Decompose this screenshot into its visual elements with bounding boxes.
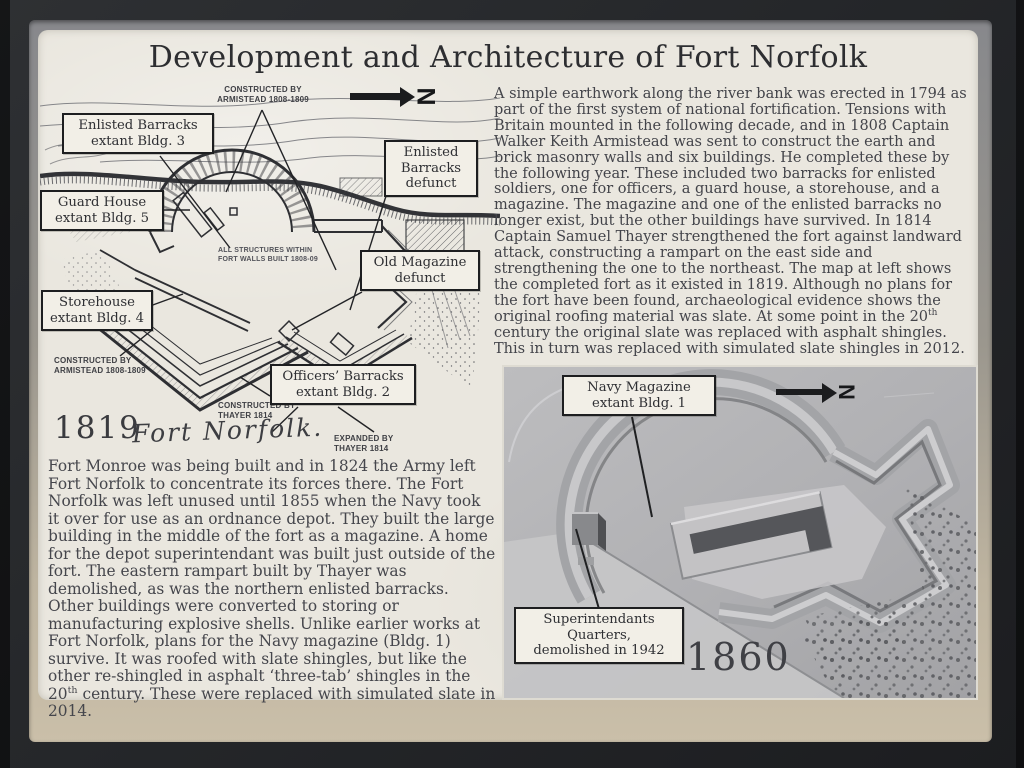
callout-enlisted-barracks-defunct: Enlisted Barracks defunct [384,140,478,197]
history-paragraph-1794-1819: A simple earthwork along the river bank … [494,87,976,357]
paragraph-text: A simple earthwork along the river bank … [494,86,967,325]
photo-year-label: 1860 [686,635,791,679]
north-letter: N [413,87,438,105]
annotation-constructed-armistead-top: CONSTRUCTED BY ARMISTEAD 1808-1809 [190,85,336,106]
sign-title: Development and Architecture of Fort Nor… [38,40,978,75]
annotation-constructed-armistead-bottom: CONSTRUCTED BY ARMISTEAD 1808-1809 [54,356,194,377]
callout-enlisted-barracks-extant: Enlisted Barracks extant Bldg. 3 [62,113,214,154]
map-year-label: 1819 [54,410,141,446]
north-arrow-map: N [350,84,434,109]
history-paragraph-1824-2014: Fort Monroe was being built and in 1824 … [48,458,496,721]
annotation-expanded-thayer: EXPANDED BY THAYER 1814 [334,434,434,455]
annotation-all-structures: ALL STRUCTURES WITHIN FORT WALLS BUILT 1… [218,246,358,264]
photo-1860-section: Navy Magazine extant Bldg. 1 Superintend… [504,367,976,698]
callout-old-magazine: Old Magazine defunct [360,250,480,291]
superscript-th: th [928,308,937,318]
callout-superintendants-quarters: Superintendants Quarters, demolished in … [514,607,684,664]
paragraph-text: Fort Monroe was being built and in 1824 … [48,457,495,703]
callout-guard-house: Guard House extant Bldg. 5 [40,190,164,231]
interpretive-sign-plaque: Development and Architecture of Fort Nor… [38,30,978,700]
paragraph-text: century. These were replaced with simula… [48,685,495,721]
paragraph-text: century the original slate was replaced … [494,325,965,357]
map-1819-section: CONSTRUCTED BY ARMISTEAD 1808-1809 ALL S… [40,80,500,462]
superscript-th: th [68,684,78,695]
north-letter: N [835,384,857,400]
callout-navy-magazine: Navy Magazine extant Bldg. 1 [562,375,716,416]
callout-storehouse: Storehouse extant Bldg. 4 [41,290,153,331]
callout-officers-barracks: Officers’ Barracks extant Bldg. 2 [270,364,416,405]
north-arrow-icon [776,389,822,395]
north-arrow-icon [350,93,400,100]
north-arrow-photo: N [776,381,854,403]
